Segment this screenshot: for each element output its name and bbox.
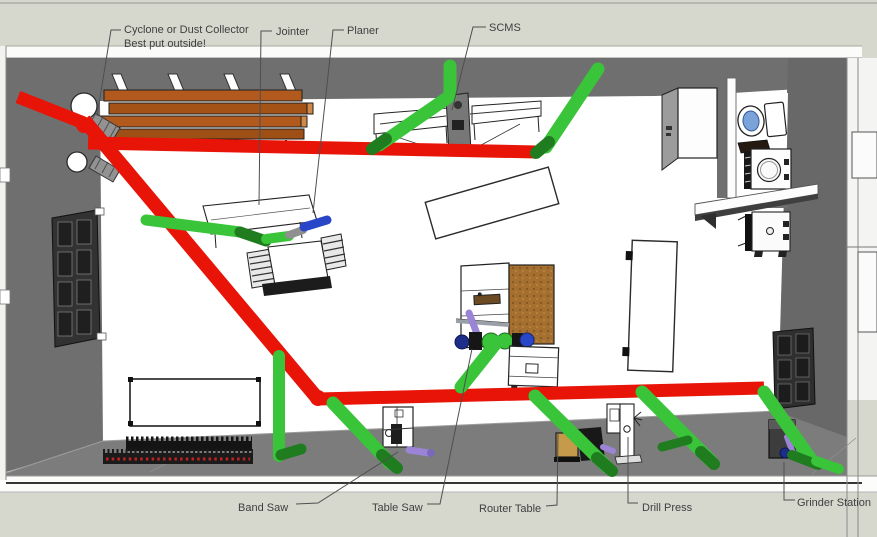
bench-corner xyxy=(256,421,261,426)
door-hinge xyxy=(95,208,104,215)
cabinet-mark xyxy=(666,126,672,130)
jointer-gray-fitting xyxy=(289,230,303,235)
bench-corner xyxy=(128,377,133,382)
label-band-saw: Band Saw xyxy=(238,502,288,514)
stove-control xyxy=(783,234,789,240)
cyclone-drum xyxy=(67,152,87,172)
left-wall-notch-2 xyxy=(0,290,10,304)
stove-side xyxy=(745,214,752,251)
duct-junction xyxy=(310,390,326,406)
lumber-board-endcap xyxy=(307,103,313,114)
workbench-top xyxy=(130,379,260,426)
bench-corner xyxy=(256,377,261,382)
washer-knob xyxy=(784,174,789,180)
workshop-dust-collection-diagram: Cyclone or Dust Collector Best put outsi… xyxy=(0,0,877,537)
stove-knob xyxy=(767,228,774,235)
long-table xyxy=(622,240,678,372)
left-wall-door xyxy=(52,208,106,347)
label-drill-press: Drill Press xyxy=(642,502,693,514)
scms-saw-detail xyxy=(452,120,464,130)
scms-saw-motor xyxy=(454,101,462,109)
cabinet-front xyxy=(678,88,717,158)
duct-top-run xyxy=(88,143,537,152)
right-outside-box-2 xyxy=(858,252,877,332)
table-clamp xyxy=(626,251,633,260)
label-table-saw: Table Saw xyxy=(372,502,423,514)
label-scms: SCMS xyxy=(489,22,521,34)
tablesaw-cork-top xyxy=(509,265,554,344)
right-outside-box-1 xyxy=(852,132,877,178)
stove-appliance xyxy=(738,212,790,257)
lumber-board-endcap xyxy=(301,116,307,127)
lumber-board xyxy=(109,103,313,114)
router-hose-purple xyxy=(603,447,613,451)
stove-control xyxy=(783,221,789,227)
bathroom-partition-board xyxy=(727,78,736,198)
storage-cabinet xyxy=(662,88,717,170)
manifold-bracket xyxy=(469,332,482,350)
washer-knob xyxy=(784,159,789,165)
bottom-wall-cap xyxy=(0,476,877,492)
label-planer: Planer xyxy=(347,25,379,37)
toilet-tank xyxy=(764,102,786,137)
label-cyclone-line2: Best put outside! xyxy=(124,38,206,50)
bench-corner xyxy=(128,421,133,426)
right-outside-area xyxy=(847,58,877,400)
left-outer-wall xyxy=(0,46,6,480)
long-table-top xyxy=(628,240,678,371)
workbench xyxy=(128,377,261,426)
stove-foot xyxy=(754,251,763,257)
label-grinder-station: Grinder Station xyxy=(797,497,871,509)
manifold-blue-port xyxy=(520,333,534,347)
door-hinge xyxy=(97,333,106,340)
stove-foot xyxy=(778,251,787,257)
right-wall-door xyxy=(773,328,815,409)
lumber-board xyxy=(101,116,307,127)
manifold-navy-port xyxy=(455,335,469,349)
lumber-board xyxy=(114,129,304,139)
scms-left-drop-elbow xyxy=(372,139,386,149)
lumber-board xyxy=(104,90,302,101)
cabinet-mark xyxy=(666,133,671,136)
table-clamp xyxy=(622,347,629,356)
scms-right-drop-elbow xyxy=(536,142,549,153)
label-router-table: Router Table xyxy=(479,503,541,515)
drill-column xyxy=(620,404,634,457)
hose-end-cap xyxy=(427,449,435,457)
left-wall-notch-1 xyxy=(0,168,10,182)
floor-sweep-elbow xyxy=(281,449,301,455)
duct-junction xyxy=(76,117,92,133)
label-cyclone-line1: Cyclone or Dust Collector xyxy=(124,24,249,36)
label-jointer: Jointer xyxy=(276,26,309,38)
outfeed-cabinet xyxy=(508,346,558,391)
bandsaw-hose-purple xyxy=(409,450,429,453)
